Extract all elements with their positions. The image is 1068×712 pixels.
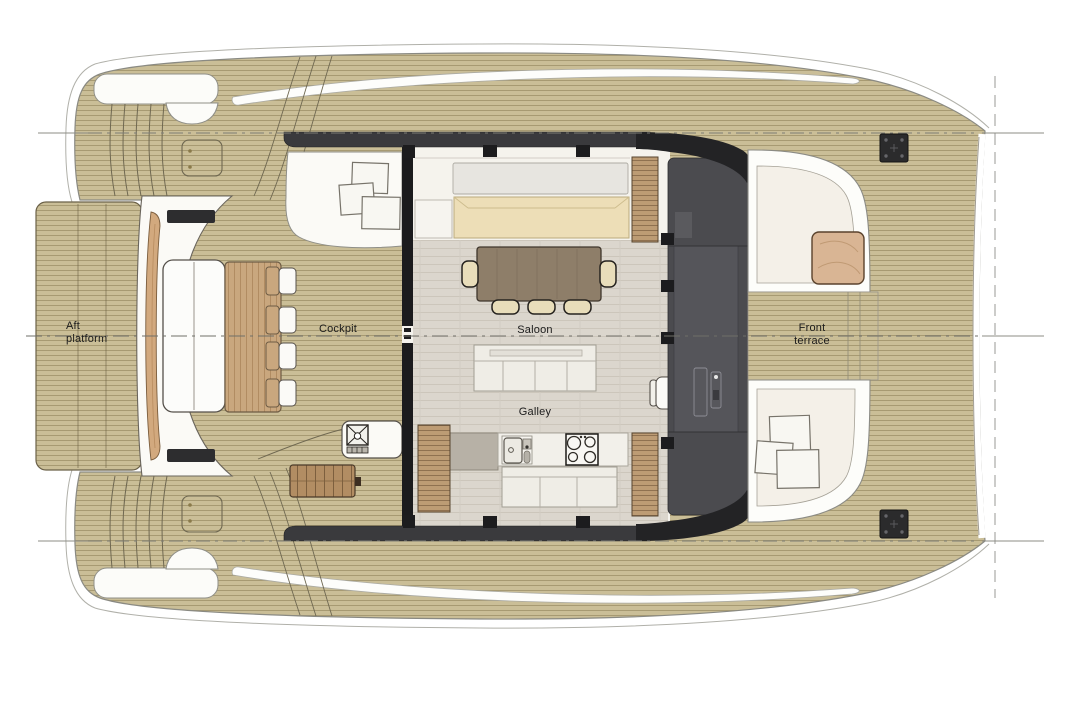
terrace-table xyxy=(812,232,864,284)
sliding-door-frame xyxy=(402,147,413,526)
dining-chair xyxy=(528,300,555,314)
dining-chair xyxy=(564,300,591,314)
galley-label: Galley xyxy=(495,406,575,419)
dining-chair xyxy=(600,261,616,287)
stove-burners-icon xyxy=(566,434,598,465)
stern-sunpad xyxy=(94,568,218,598)
deck-plan-drawing xyxy=(0,0,1068,712)
stern-sunpad xyxy=(94,74,218,104)
mooring-bollard-icon xyxy=(880,134,908,162)
sofa-back xyxy=(453,163,628,194)
dining-chair xyxy=(492,300,519,314)
cleat-icon xyxy=(167,449,215,462)
grill-module xyxy=(342,421,402,458)
yacht-deck-plan: Aft platform Cockpit Saloon Galley Front… xyxy=(0,0,1068,712)
galley-counter-gray xyxy=(450,433,498,470)
wood-cabinet-forward-galley xyxy=(632,433,658,516)
aft-platform-label: Aft platform xyxy=(66,320,114,346)
cleat-icon xyxy=(167,210,215,223)
front-terrace-label: Front terrace xyxy=(785,322,839,348)
dining-chair xyxy=(462,261,478,287)
slatted-table xyxy=(290,465,361,497)
sink-icon xyxy=(502,436,532,464)
saloon-label: Saloon xyxy=(495,324,575,337)
side-cabinet xyxy=(415,200,452,238)
wood-cabinet-forward-top xyxy=(632,157,658,242)
dining-table xyxy=(477,247,601,301)
grill-icon xyxy=(347,425,368,453)
galley-island-lower xyxy=(502,467,617,507)
mooring-bollard-icon xyxy=(880,510,908,538)
galley-island-sideboard xyxy=(474,345,596,391)
wood-cabinet-aft-galley xyxy=(418,425,450,512)
cockpit-label: Cockpit xyxy=(298,323,378,336)
sofa-seat xyxy=(454,197,629,238)
